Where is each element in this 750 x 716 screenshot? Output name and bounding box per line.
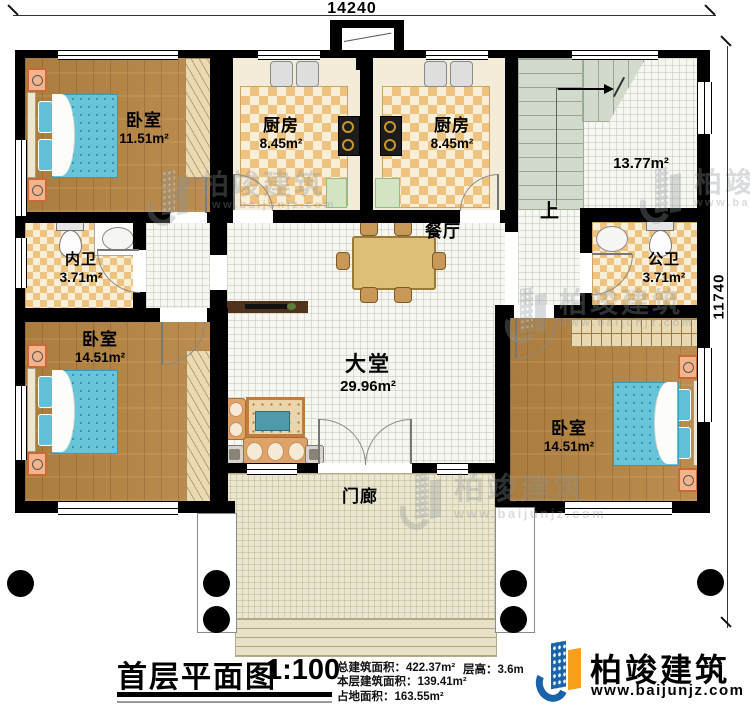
kitchen-sink-icon: [270, 61, 319, 87]
dimension-top-value: 14240: [327, 0, 377, 18]
bed-bedroom-br: [612, 380, 702, 466]
stat-footprint-area: 占地面积：163.55m²: [337, 690, 467, 704]
watermark-name: 柏竣建筑: [559, 288, 694, 317]
area-stats: 总建筑面积：422.37m² 本层建筑面积：139.41m² 占地面积：163.…: [337, 661, 467, 704]
nightstand: [27, 178, 47, 202]
tv-console: [223, 301, 308, 313]
kitchen-sink-icon: [424, 61, 473, 87]
room-label-bedroom-br: 卧室14.51m²: [544, 418, 594, 456]
room-label-porch: 门廊: [342, 486, 378, 507]
watermark-url: www.baijunjz.com: [559, 317, 694, 329]
watermark-name: 柏竣建筑: [454, 474, 606, 506]
coffee-table: [255, 411, 290, 431]
brand-watermark-icon: [640, 168, 686, 224]
window: [697, 82, 712, 134]
plan-title: 首层平面图: [117, 652, 277, 696]
stairs-up-label: 上: [540, 196, 559, 223]
brand-watermark-icon: [147, 170, 193, 226]
dimension-line-right: [727, 46, 728, 628]
column: [697, 569, 724, 596]
bed-bedroom-bl: [27, 368, 117, 452]
wall: [297, 463, 318, 473]
wall: [210, 223, 227, 255]
watermark: 柏竣建筑 www.baijunjz.com: [400, 474, 606, 530]
brand-watermark-icon: [400, 474, 446, 530]
stair-arrow-head-icon: [604, 84, 614, 94]
room-label-bedroom-tl: 卧室11.51m²: [119, 110, 169, 148]
wall: [412, 463, 437, 473]
stat-total-area: 总建筑面积：422.37m²: [337, 661, 467, 675]
bed-bedroom-tl: [27, 92, 117, 178]
room-label-hall: 大堂29.96m²: [340, 352, 396, 397]
wall: [210, 290, 227, 308]
watermark: 柏竣建筑 www.baijunjz.com: [147, 170, 336, 226]
wall: [15, 308, 160, 322]
door-opening: [160, 308, 207, 322]
kitchen-counter: [375, 178, 400, 208]
corridor-left-floor: [146, 222, 210, 310]
window: [247, 463, 297, 475]
column: [203, 570, 230, 597]
nightstand: [27, 452, 47, 476]
nightstand: [678, 468, 698, 492]
room-label-private-bath: 内卫3.71m²: [60, 251, 103, 287]
column: [7, 570, 34, 597]
watermark-url: www.baijunjz.com: [694, 197, 750, 209]
door-opening: [460, 210, 500, 223]
nightstand: [27, 68, 47, 92]
dimension-tick: [720, 35, 731, 46]
nightstand: [27, 344, 47, 368]
stair-flight-lower: [518, 58, 584, 210]
dining-chair: [336, 252, 350, 270]
chimney-flue: [341, 27, 395, 51]
wall: [580, 222, 592, 253]
dining-chair: [432, 252, 446, 270]
window: [258, 50, 320, 60]
sink-icon: [596, 226, 628, 252]
window: [426, 50, 488, 60]
room-label-kitchen-right: 厨房8.45m²: [431, 115, 474, 153]
watermark-url: www.baijunjz.com: [201, 199, 336, 211]
watermark-url: www.baijunjz.com: [454, 506, 606, 521]
stat-floor-height: 层高：3.6m: [463, 661, 524, 677]
wardrobe-bedroom-tl: [185, 58, 212, 178]
watermark: 柏竣建筑 www.baijunjz.com: [505, 288, 694, 344]
dimension-right-value: 11740: [711, 270, 728, 324]
brand-watermark-icon: [505, 288, 551, 344]
sofa: [243, 437, 308, 465]
stove-icon: [338, 116, 360, 156]
dimension-tick: [7, 4, 18, 15]
wall: [505, 50, 518, 232]
wall: [133, 222, 146, 250]
wall: [133, 292, 146, 308]
dimension-tick: [704, 4, 715, 15]
room-label-stair-hall: 13.77m²: [613, 155, 669, 174]
floor-plan-canvas: 柏竣建筑 www.baijunjz.com 柏竣建筑 www.baijunjz.…: [0, 0, 750, 716]
watermark-name: 柏竣建筑: [201, 170, 336, 199]
room-label-kitchen-left: 厨房8.45m²: [260, 115, 303, 153]
title-underline-thin: [117, 701, 332, 703]
room-label-bedroom-bl: 卧室14.51m²: [75, 329, 125, 367]
sink-icon: [102, 227, 134, 251]
dimension-tick: [720, 616, 731, 627]
wall: [210, 308, 228, 513]
watermark-name: 柏竣建筑: [694, 168, 750, 197]
stair-rail: [556, 88, 557, 206]
plan-scale: 1:100: [266, 654, 340, 687]
window: [15, 386, 27, 460]
window: [15, 238, 27, 288]
stove-icon: [380, 116, 402, 156]
window: [58, 50, 178, 60]
nightstand: [678, 355, 698, 379]
room-label-dining: 餐厅: [425, 221, 461, 242]
window: [15, 140, 27, 216]
window: [572, 50, 658, 60]
window: [58, 501, 178, 515]
window: [697, 348, 712, 422]
dining-chair: [360, 287, 378, 303]
wall: [360, 58, 373, 223]
column: [500, 570, 527, 597]
title-underline: [117, 692, 332, 697]
brand-website: www.baijunjz.com: [591, 682, 744, 699]
column: [500, 606, 527, 633]
dining-chair: [394, 287, 412, 303]
room-label-public-bath: 公卫3.71m²: [643, 251, 686, 287]
stat-floor-area: 本层建筑面积：139.41m²: [337, 675, 467, 689]
watermark: 柏竣建筑 www.baijunjz.com: [640, 168, 750, 224]
armchair: [225, 398, 246, 440]
column: [203, 606, 230, 633]
stair-direction-arrow: [558, 88, 606, 90]
dining-table: [352, 236, 436, 290]
brand-logo-icon: [536, 642, 584, 704]
